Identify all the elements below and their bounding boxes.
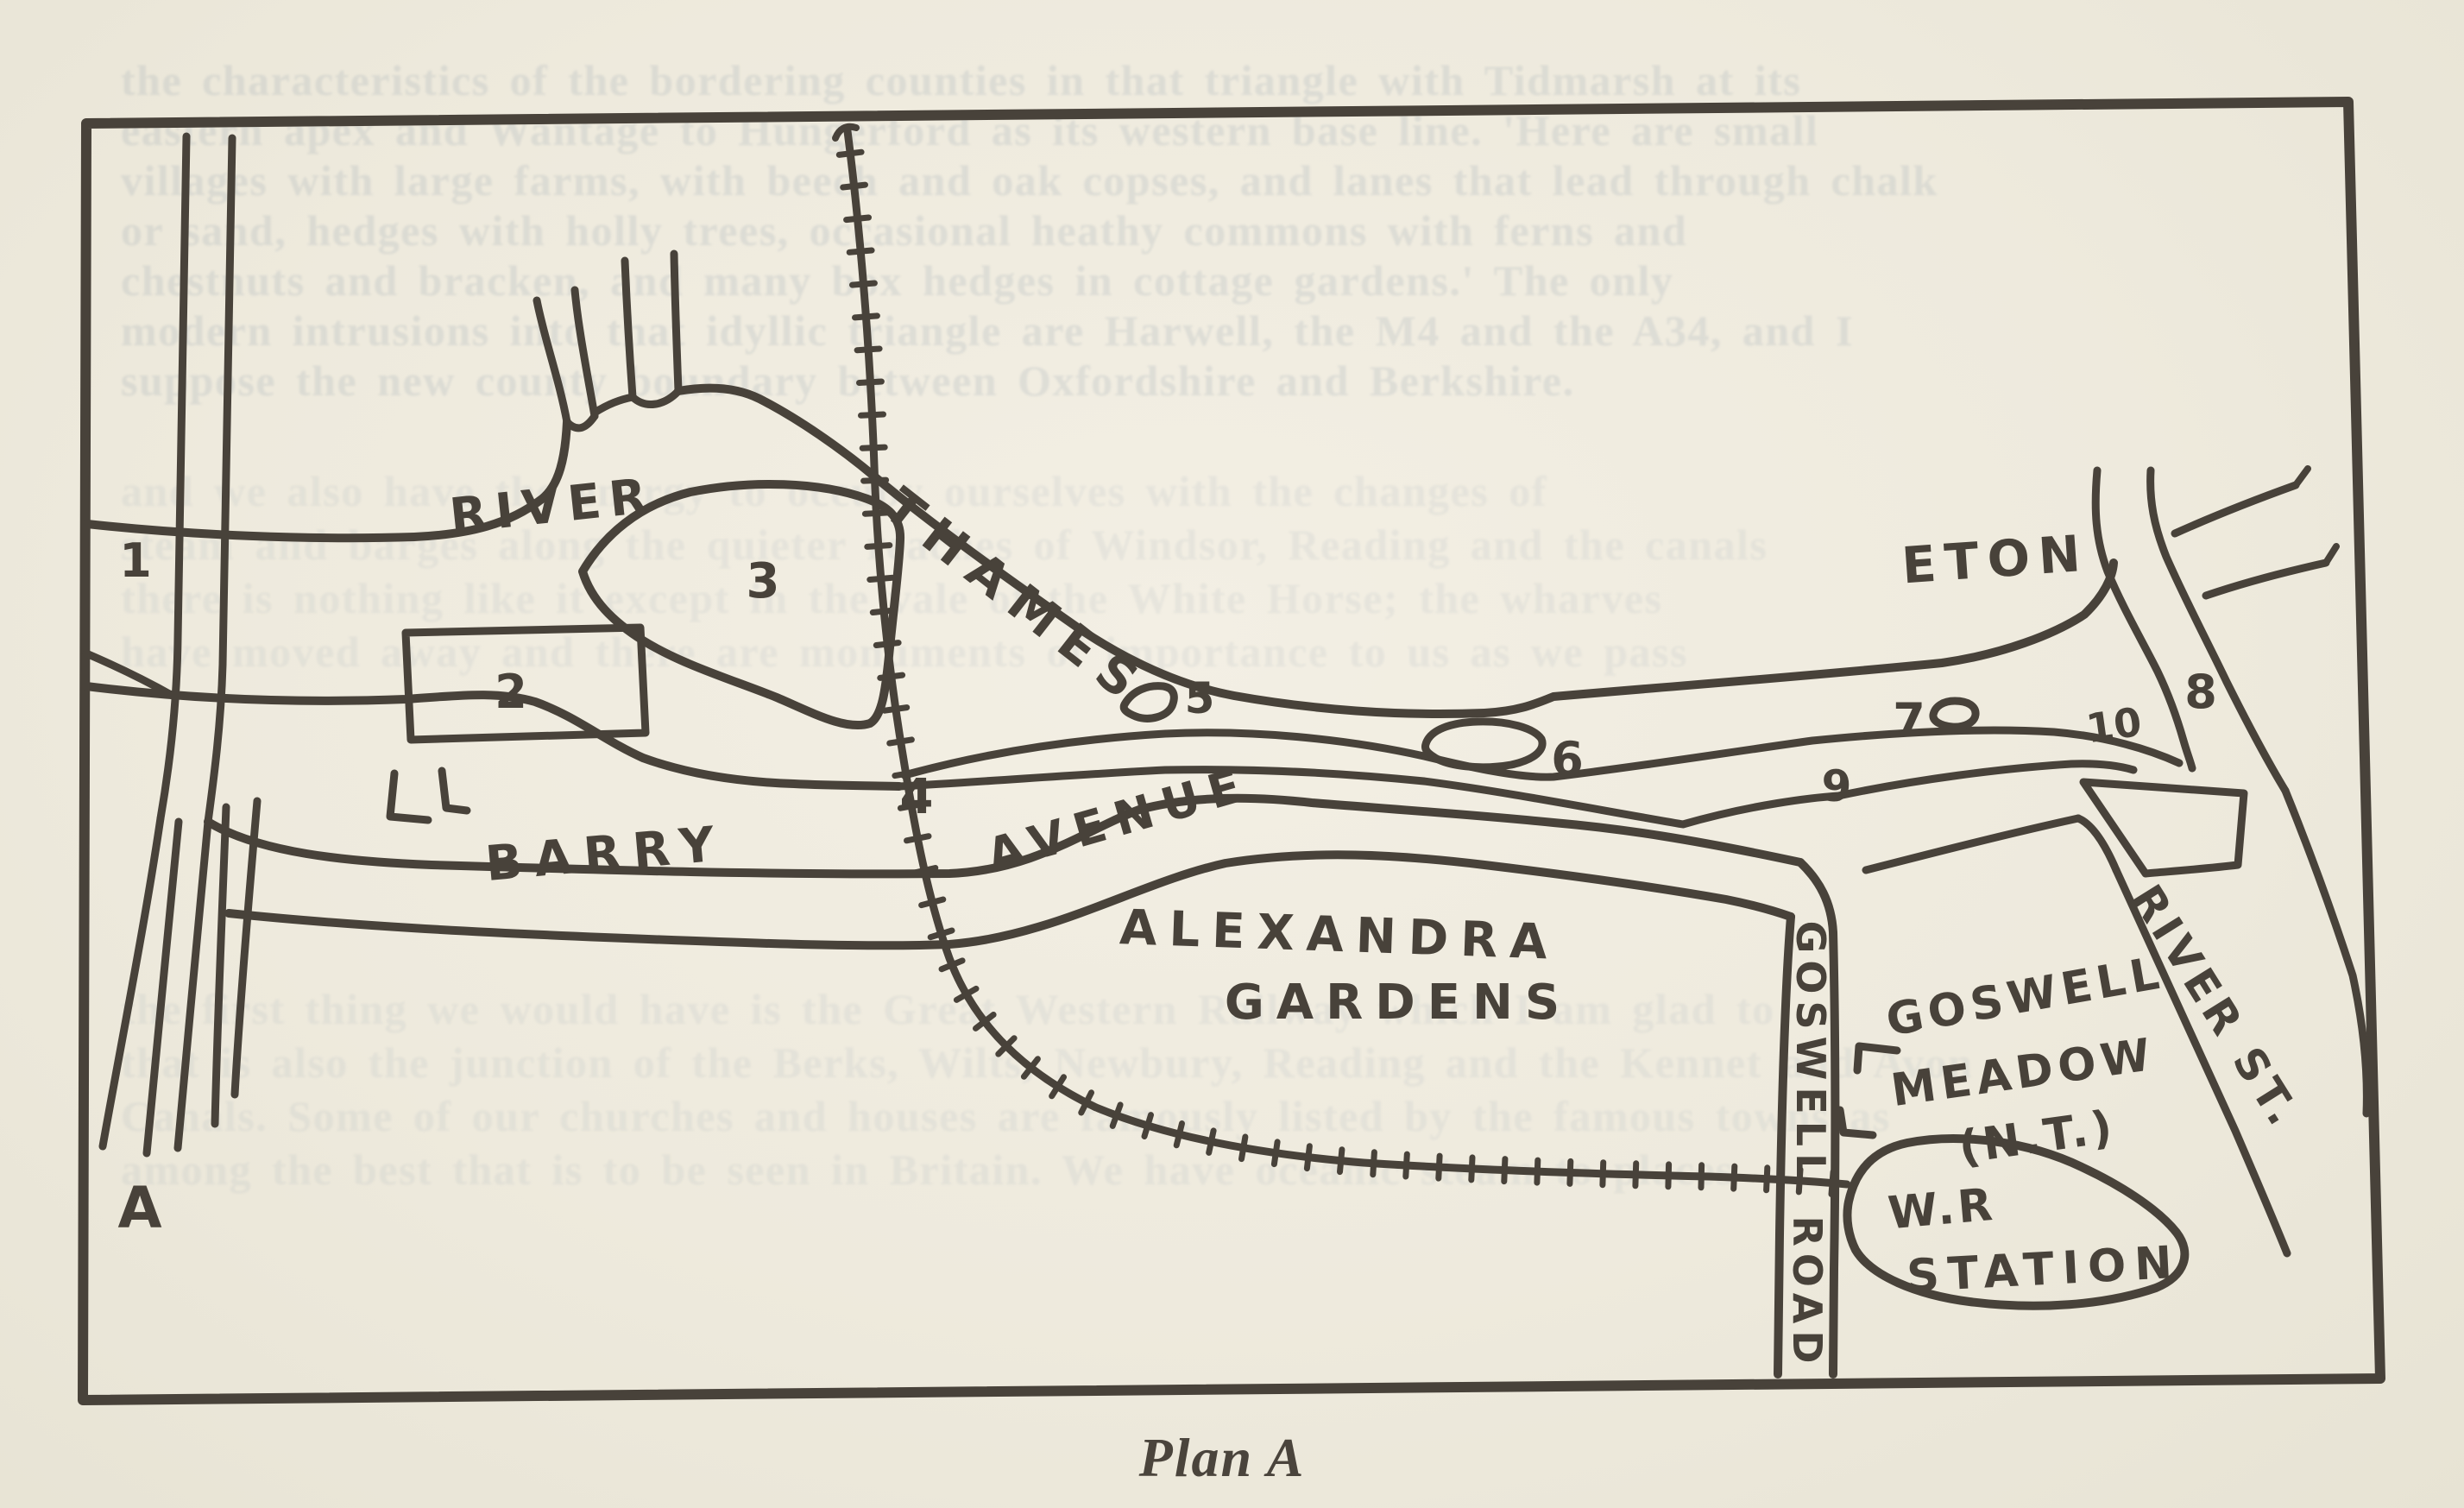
railway-tick (1701, 1165, 1702, 1188)
railway-tick (1340, 1150, 1342, 1172)
creek-prong (575, 290, 595, 416)
river-st-label: RIVER ST. (2121, 876, 2310, 1138)
creek-base (633, 391, 678, 404)
eton-label: ETON (1900, 524, 2090, 596)
building-mark (390, 773, 428, 820)
railway-tick (1570, 1161, 1571, 1183)
railway-tick (847, 218, 869, 220)
railway (835, 127, 1847, 1195)
creek-base (567, 416, 595, 428)
railway-tick (1603, 1163, 1604, 1185)
railway-tick (1274, 1142, 1277, 1164)
railway-tick (1144, 1115, 1151, 1137)
railway-tick (861, 414, 884, 415)
plan-caption: Plan A (1138, 1427, 1306, 1488)
railway-ticks (839, 152, 1833, 1194)
river-st-east-edge (2285, 791, 2366, 1114)
meadow-north-boundary (1866, 818, 2078, 870)
hand-drawn-map: RIVER THAMES ETON BARRY AVENUE ALEXANDRA… (0, 0, 2464, 1508)
plan-corner-letter: A (117, 1175, 161, 1241)
railway-tick (860, 382, 882, 383)
spur-end-tick (2326, 546, 2336, 563)
goswell-meadow-label: (N.T.) (1956, 1101, 2119, 1175)
railway-tick (867, 546, 890, 547)
eton-spur-road (2175, 485, 2296, 533)
west-road (86, 136, 257, 1153)
railway-tick (839, 152, 861, 155)
site-number-6: 6 (1551, 732, 1584, 786)
railway-tick (870, 577, 892, 579)
bank-saddle (595, 397, 633, 413)
building-mark (442, 771, 467, 811)
railway-tick (1734, 1166, 1735, 1189)
railway-tick (1406, 1154, 1408, 1177)
railway-tick (853, 283, 875, 285)
eton-streets (2083, 469, 2366, 1253)
islands-and-buildings (390, 484, 2184, 1306)
goswell-road-label: GOSWELL (1787, 921, 1834, 1186)
railway-tick (1209, 1131, 1213, 1153)
alexandra-gardens-label: GARDENS (1225, 975, 1572, 1031)
scanned-book-page: the characteristics of the bordering cou… (0, 0, 2464, 1508)
railway-tick (1668, 1164, 1669, 1187)
thames-label: THAMES (873, 476, 1160, 718)
wr-station-label: W.R (1886, 1179, 1998, 1240)
railway-tick (922, 899, 943, 905)
railway-tick (849, 250, 872, 252)
railway-tick (907, 836, 930, 841)
railway-tick (1242, 1137, 1245, 1159)
site-number-2: 2 (495, 665, 527, 719)
island-7-outline (1933, 701, 1976, 727)
west-road-line (208, 138, 232, 822)
barry-label: BARRY (483, 816, 728, 893)
railway-tick (864, 480, 886, 481)
alexandra-gardens-label: ALEXANDRA (1119, 899, 1560, 971)
map-border (83, 102, 2380, 1400)
railway-tick (930, 931, 952, 937)
railway-tick (1537, 1160, 1538, 1183)
railway-tick (885, 708, 907, 711)
site-number-3: 3 (747, 553, 780, 609)
site-number-5: 5 (1185, 673, 1215, 723)
railway-tick (1635, 1164, 1636, 1186)
railway-tick (890, 740, 912, 743)
goswell-meadow-label: MEADOW (1888, 1029, 2159, 1117)
creek-prong (537, 300, 567, 422)
field-corner-mark (1840, 1110, 1873, 1135)
railway-tick (1307, 1146, 1309, 1169)
railway-tick (862, 447, 885, 448)
railway-tick (1471, 1158, 1472, 1180)
railway-tick (1439, 1156, 1440, 1178)
site-number-8: 8 (2184, 665, 2217, 719)
creek-prong (625, 261, 633, 397)
site-number-1: 1 (119, 533, 152, 588)
railway-tick (1112, 1105, 1120, 1126)
west-road-line (161, 136, 186, 818)
goswell-road-label: ROAD (1784, 1215, 1831, 1370)
railway-tick (942, 961, 962, 969)
railway-tick (855, 316, 878, 318)
spur-end-tick (2296, 469, 2308, 485)
railway-tick (1767, 1168, 1768, 1190)
river-label: RIVER (447, 468, 658, 546)
lane-line (178, 822, 208, 1148)
railway-tick (1373, 1152, 1375, 1175)
lane-line (215, 807, 226, 1124)
railway-tick (843, 185, 866, 187)
site-number-7: 7 (1893, 693, 1925, 748)
railway-tick (1176, 1124, 1182, 1145)
railway-tick (1504, 1159, 1505, 1182)
site-number-4: 4 (900, 769, 934, 825)
site-number-10: 10 (2083, 698, 2145, 752)
site-number-9: 9 (1822, 761, 1852, 811)
island-6-outline (1425, 722, 1542, 767)
eton-spur-road (2206, 563, 2326, 596)
railway-tick (857, 349, 879, 350)
creek-prong (674, 254, 678, 391)
